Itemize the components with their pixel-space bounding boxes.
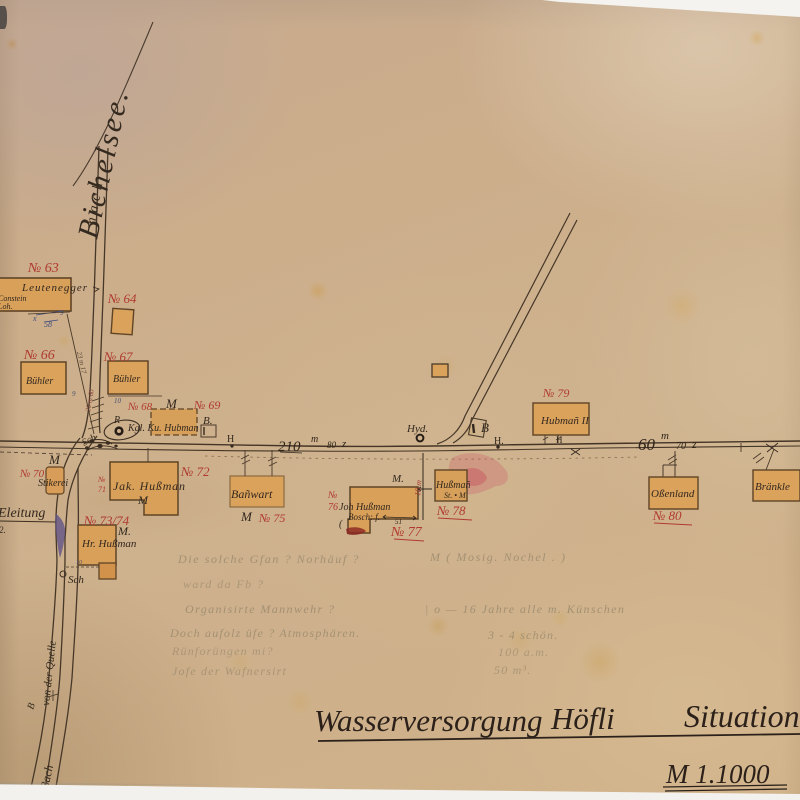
svg-text:R: R [113, 415, 120, 426]
svg-text:Doch aufolz üfe ? Atmosphären.: Doch aufolz üfe ? Atmosphären. [169, 626, 360, 640]
svg-text:M.: M. [391, 473, 404, 485]
svg-text:M.: M. [117, 524, 131, 538]
svg-text:№: № [97, 475, 106, 484]
svg-text:z: z [691, 437, 697, 451]
svg-text:B: B [481, 420, 489, 435]
svg-text:18 m: 18 m [413, 479, 423, 496]
svg-text:Die solche Gfan ? Norhäuf ?: Die solche Gfan ? Norhäuf ? [177, 552, 360, 566]
svg-text:9: 9 [72, 390, 76, 398]
svg-text:№ 75: № 75 [258, 511, 285, 525]
svg-text:M 1.1000: M 1.1000 [665, 759, 770, 789]
svg-text:Wasserversorgung: Wasserversorgung [314, 703, 543, 738]
svg-text:Jofe der Wafnersirt: Jofe der Wafnersirt [172, 664, 287, 678]
svg-text:M: M [137, 493, 149, 507]
svg-text:9: 9 [60, 309, 64, 317]
svg-text:№ 72: № 72 [180, 464, 210, 479]
svg-text:Situation: Situation [684, 698, 800, 734]
svg-text:Leutenegger: Leutenegger [21, 282, 88, 294]
svg-text:23 m 17: 23 m 17 [75, 351, 88, 375]
svg-text:B: B [25, 702, 37, 712]
svg-text:Hyd.: Hyd. [406, 423, 428, 435]
svg-text:H: H [556, 435, 563, 445]
svg-text:(: ( [339, 519, 343, 530]
svg-text:60: 60 [638, 435, 656, 454]
svg-text:71: 71 [98, 485, 106, 494]
svg-text:Höfli: Höfli [550, 701, 615, 736]
svg-text:Rünforüngen mi?: Rünforüngen mi? [171, 644, 274, 658]
svg-text:St. • M: St. • M [444, 491, 467, 500]
svg-text:Jak. Hußman: Jak. Hußman [113, 479, 186, 493]
svg-text:Bühler: Bühler [26, 376, 53, 387]
svg-text:№ 69: № 69 [193, 398, 220, 412]
svg-text:Bichelsee.: Bichelsee. [72, 85, 136, 241]
svg-text:M ( Mosig. Nochel . ): M ( Mosig. Nochel . ) [429, 550, 567, 564]
svg-text:10: 10 [76, 560, 82, 566]
svg-text:10: 10 [114, 397, 122, 405]
svg-text:№ 68: № 68 [127, 401, 153, 413]
svg-text:3 - 4 schön.: 3 - 4 schön. [487, 628, 558, 642]
svg-text:z: z [341, 438, 347, 450]
svg-text:ward da Fb ?: ward da Fb ? [183, 577, 264, 591]
svg-text:№ 78: № 78 [436, 503, 466, 518]
svg-text:№: № [327, 490, 337, 501]
svg-text:Sch: Sch [68, 574, 84, 586]
svg-text:Bränkle: Bränkle [755, 481, 790, 493]
svg-text:№ 64: № 64 [107, 291, 137, 306]
svg-text:Kgl. Ku. Hubman: Kgl. Ku. Hubman [127, 423, 199, 434]
svg-text:Bühler: Bühler [113, 374, 140, 385]
svg-text:M: M [240, 509, 253, 524]
svg-text:№ 66: № 66 [23, 348, 55, 363]
svg-text:m: m [311, 434, 318, 445]
svg-text:M: M [165, 396, 178, 411]
svg-text:70: 70 [676, 441, 686, 452]
svg-text:B.: B. [203, 415, 212, 427]
svg-text:100 a.m.: 100 a.m. [498, 645, 549, 659]
svg-text:M: M [48, 452, 61, 467]
svg-text:Eleitung: Eleitung [0, 506, 45, 521]
svg-text:H: H [227, 434, 234, 445]
svg-text:x: x [32, 314, 37, 323]
svg-text:№ 67: № 67 [103, 349, 133, 364]
svg-text:Hr. Hußman: Hr. Hußman [81, 538, 137, 550]
svg-text:№ 79: № 79 [542, 386, 569, 400]
svg-text:H.: H. [494, 436, 504, 447]
svg-text:Loh.: Loh. [0, 302, 12, 311]
svg-text:№ 77: № 77 [390, 525, 423, 540]
svg-text:76: 76 [328, 502, 338, 513]
svg-text:Bañwart: Bañwart [231, 487, 273, 501]
svg-text:50 m³.: 50 m³. [494, 663, 531, 677]
svg-text:Organisirte Mannwehr ?: Organisirte Mannwehr ? [185, 602, 335, 616]
svg-text:m: m [661, 430, 669, 442]
svg-text:№ 63: № 63 [27, 261, 59, 276]
svg-text:Bosch: f.: Bosch: f. [348, 512, 380, 522]
svg-text:Oßenland: Oßenland [651, 488, 695, 500]
svg-text:Hubmañ II: Hubmañ II [540, 415, 590, 427]
svg-text:80: 80 [327, 440, 337, 450]
svg-text:| o — 16 Jahre alle m. Künsche: | o — 16 Jahre alle m. Künschen [425, 602, 625, 616]
svg-text:2.: 2. [0, 525, 6, 535]
svg-text:Hußmañ: Hußmañ [435, 480, 470, 491]
svg-text:№ 80: № 80 [652, 508, 682, 523]
svg-text:Stikerei: Stikerei [38, 478, 68, 489]
